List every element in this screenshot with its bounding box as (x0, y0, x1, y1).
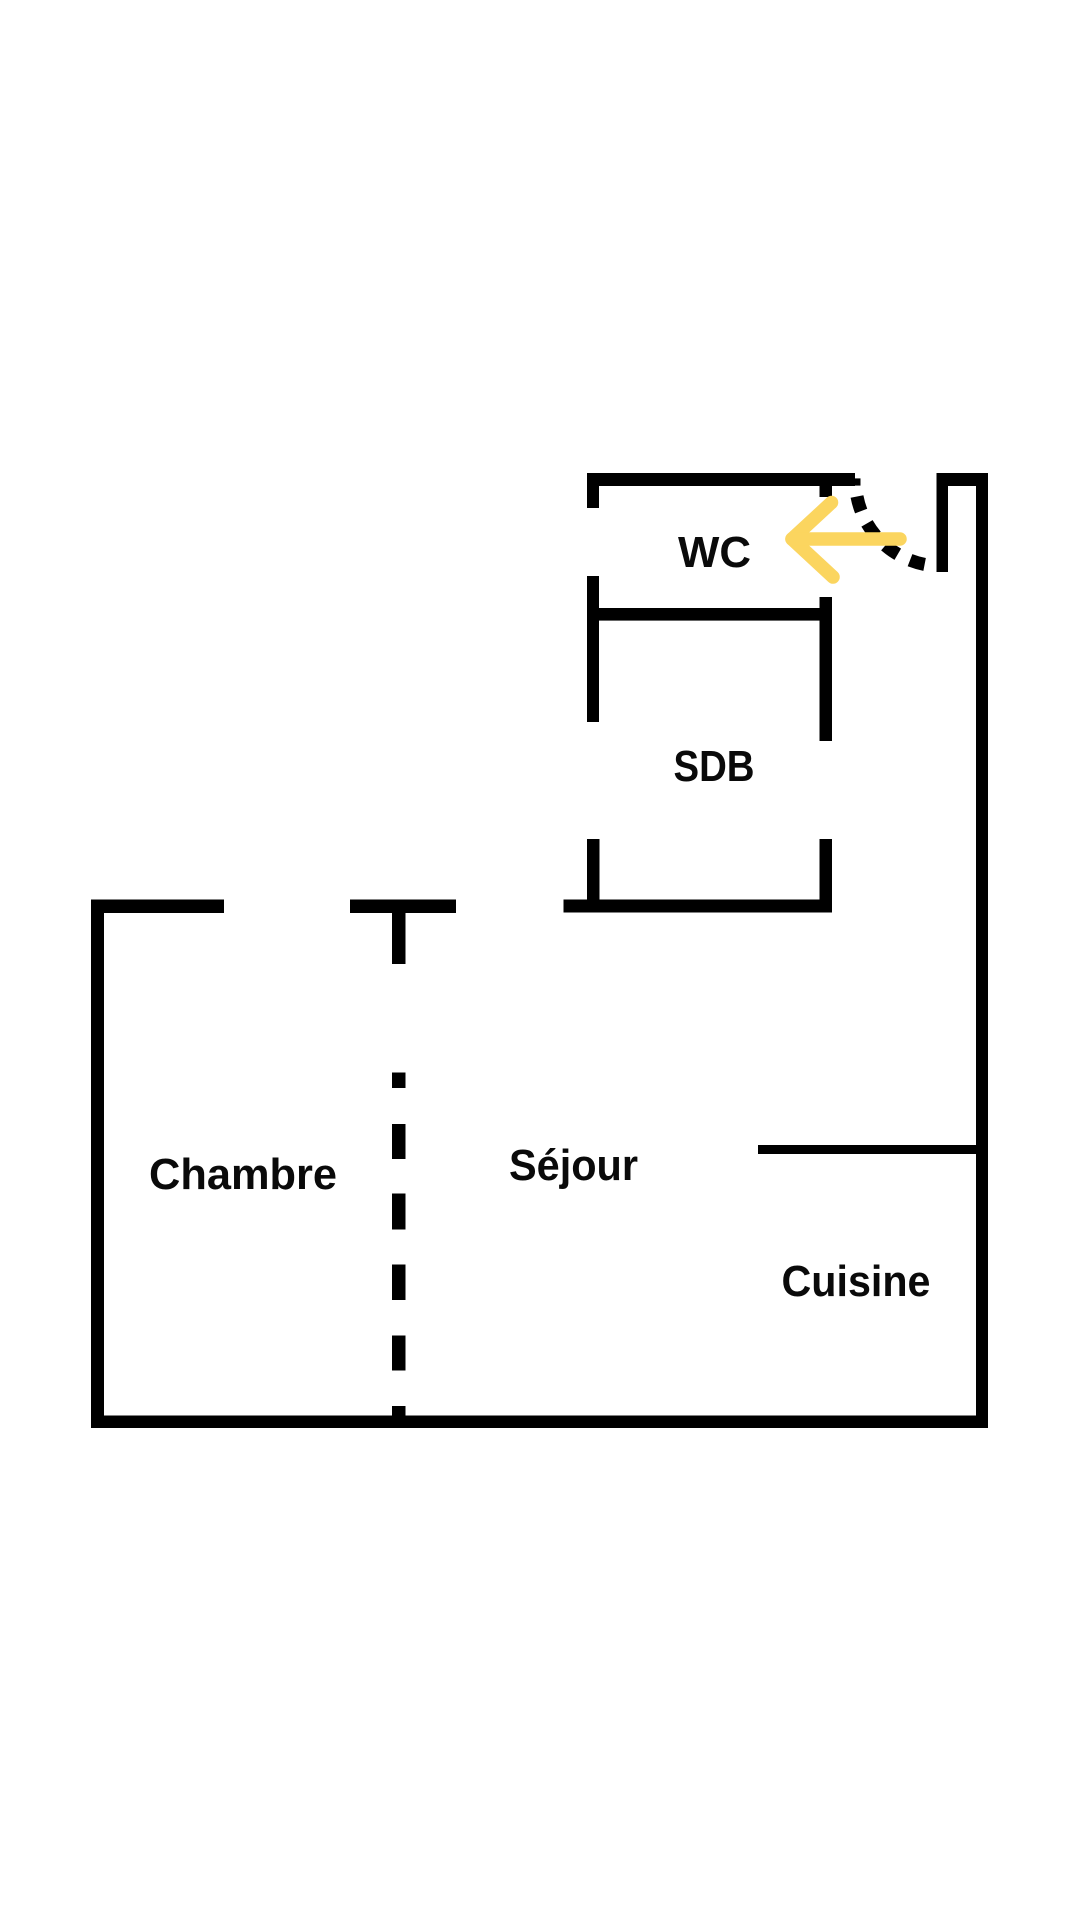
svg-text:Séjour: Séjour (509, 1141, 638, 1190)
svg-text:WC: WC (678, 528, 751, 577)
svg-text:Chambre: Chambre (149, 1150, 337, 1199)
svg-text:Cuisine: Cuisine (782, 1257, 931, 1306)
svg-text:SDB: SDB (674, 742, 755, 791)
